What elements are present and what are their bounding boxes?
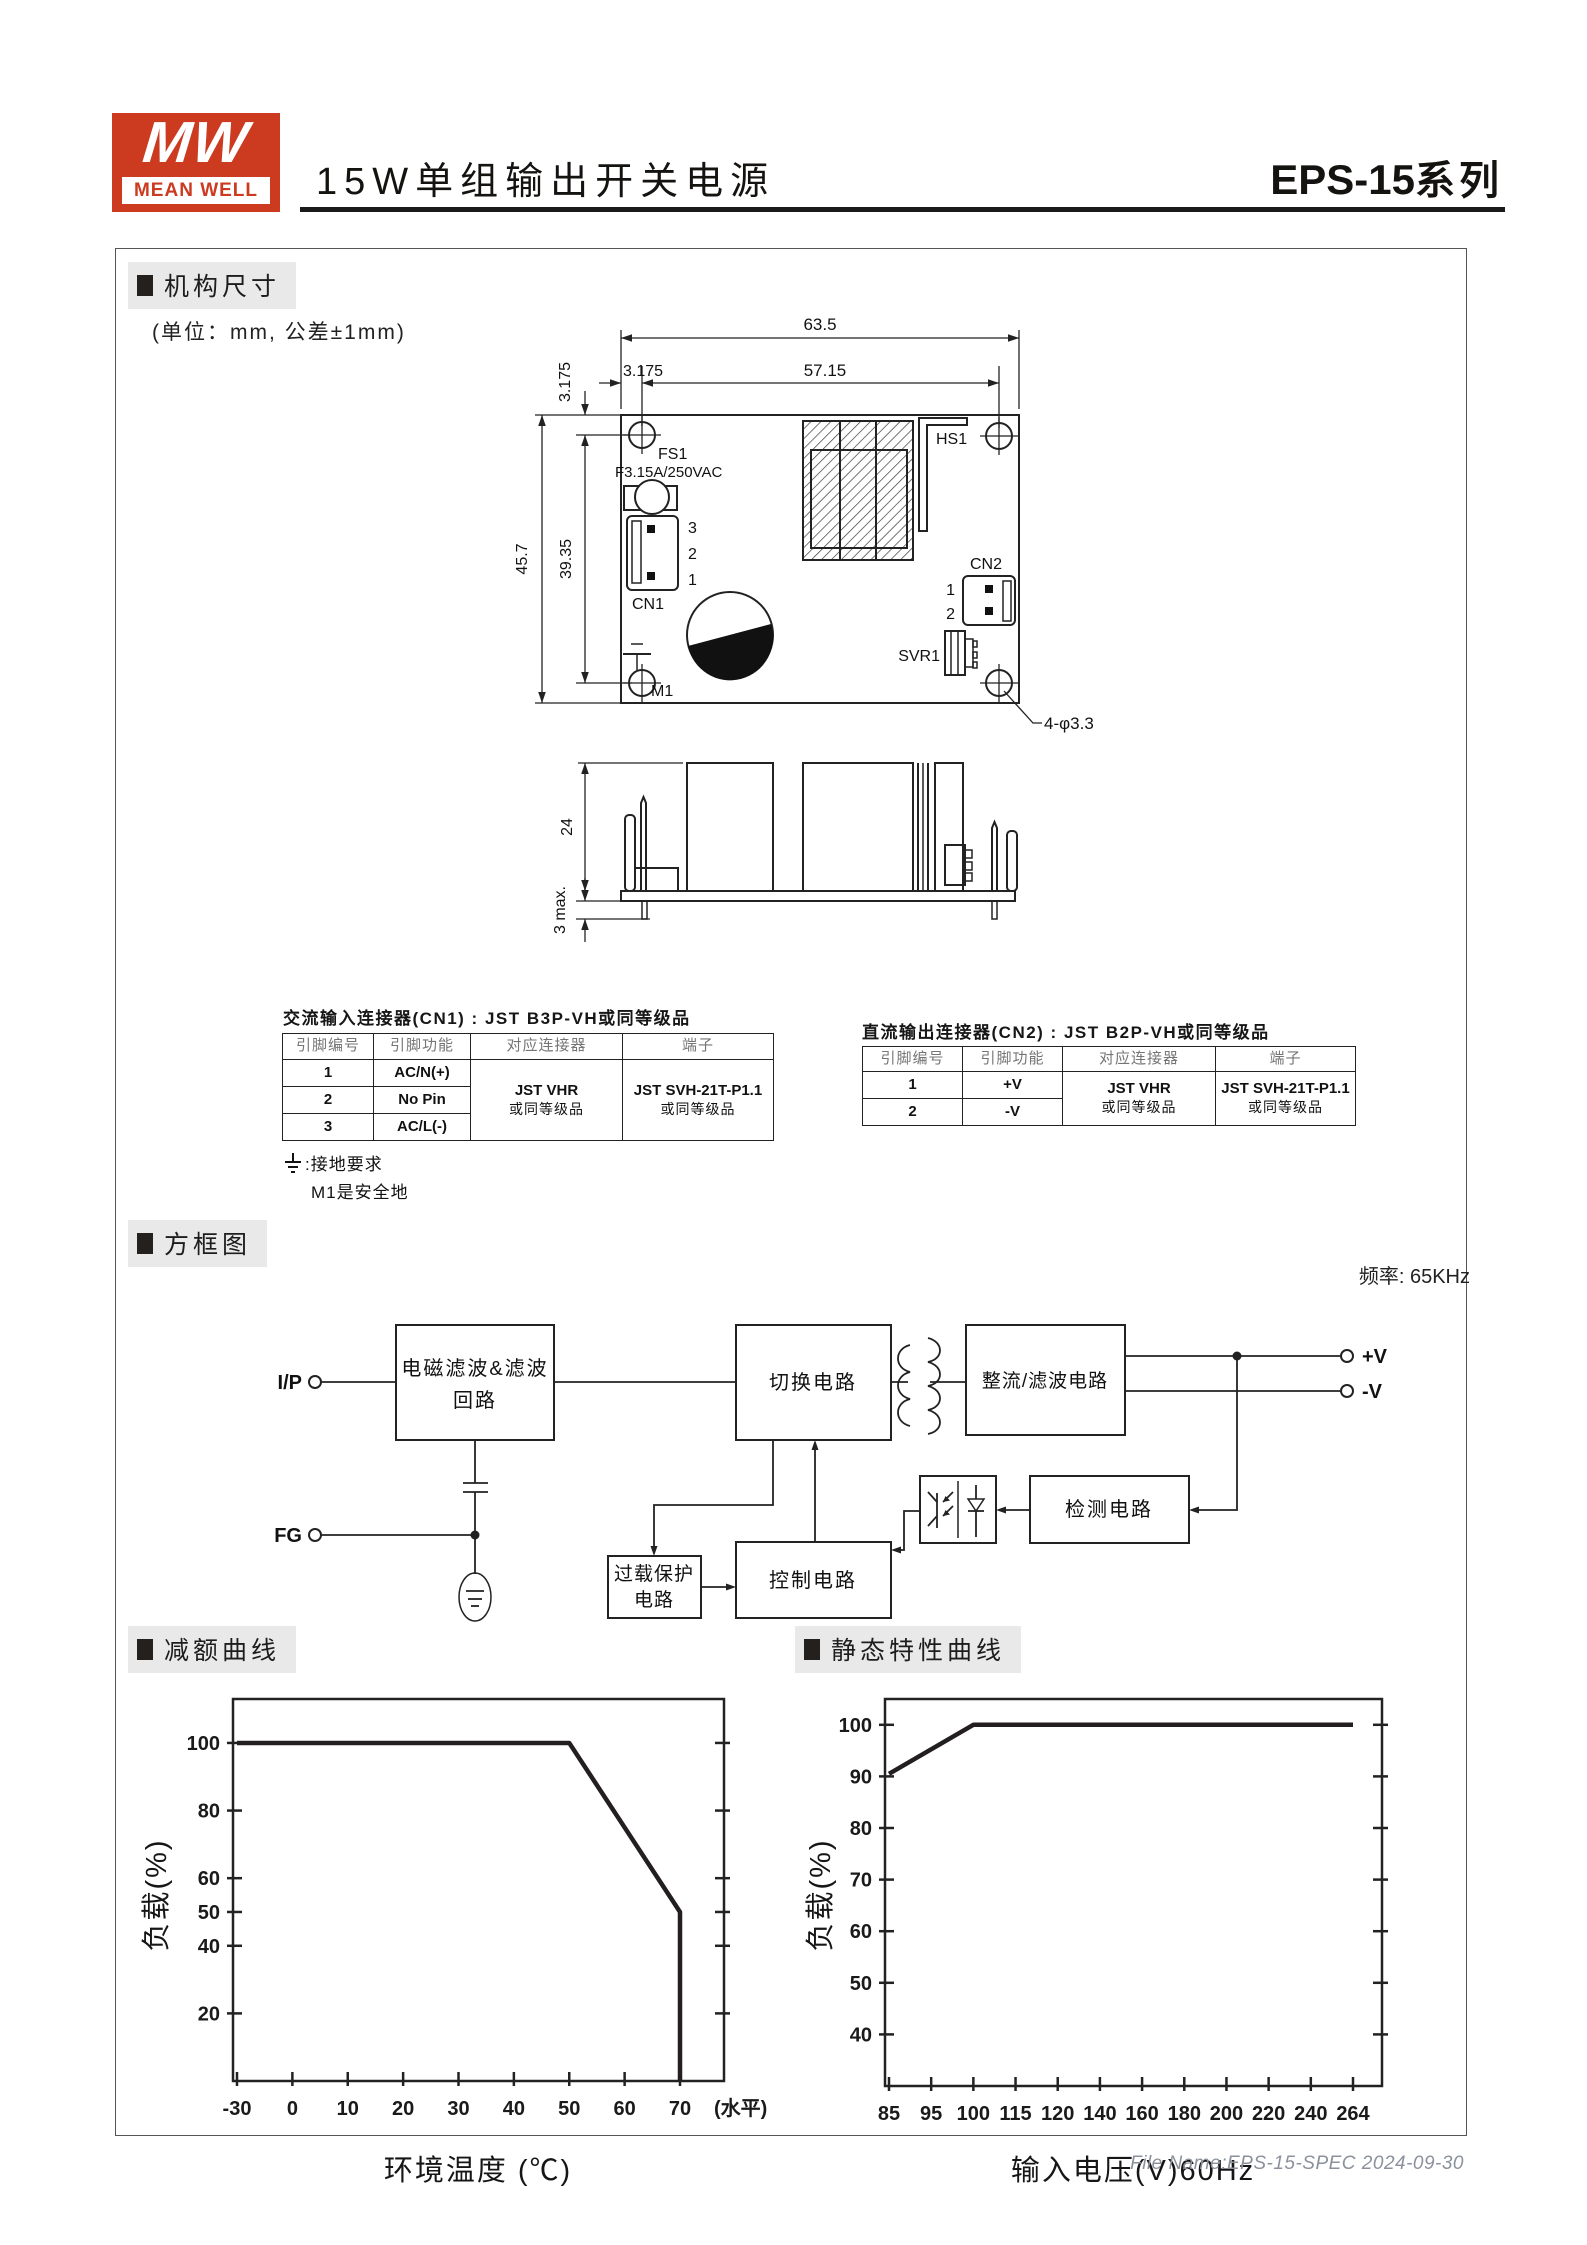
svg-text:100: 100: [957, 2103, 990, 2125]
terminal-fg: [309, 1529, 321, 1541]
logo-brand-text: MEAN WELL: [134, 180, 258, 202]
cn1-r3-pin: 3: [283, 1114, 374, 1141]
svg-text:160: 160: [1125, 2103, 1158, 2125]
cn2-h-func: 引脚功能: [963, 1047, 1063, 1072]
cn1-r3-func: AC/L(-): [374, 1114, 471, 1141]
section-square-icon: [137, 275, 153, 296]
svg-text:200: 200: [1210, 2103, 1243, 2125]
cn2-h-mating: 对应连接器: [1063, 1047, 1216, 1072]
datasheet-page: MW MEAN WELL 15W单组输出开关电源 EPS-15系列 机构尺寸 (…: [0, 0, 1587, 2245]
side-transformer: [803, 763, 913, 891]
cn1-h-mating: 对应连接器: [471, 1034, 623, 1060]
svg-text:80: 80: [850, 1818, 872, 1840]
svg-text:10: 10: [337, 2098, 359, 2120]
svg-text:20: 20: [392, 2098, 414, 2120]
svg-text:60: 60: [614, 2098, 636, 2120]
label-hs1: HS1: [936, 431, 967, 448]
side-pcb: [621, 891, 1015, 901]
cn2-terminal-cell: JST SVH-21T-P1.1或同等级品: [1216, 1072, 1356, 1126]
series-suffix: 系列: [1415, 159, 1503, 203]
cn2-h-terminal: 端子: [1216, 1047, 1356, 1072]
dim-board-width: 63.5: [803, 315, 836, 334]
svg-text:40: 40: [503, 2098, 525, 2120]
derating-chart: 负载(%) 环境温度 (℃) 2040506080100-30010203040…: [130, 1690, 790, 2210]
transformer: [803, 421, 913, 560]
svg-text:220: 220: [1252, 2103, 1285, 2125]
label-vplus: +V: [1362, 1346, 1388, 1368]
label-fs1: FS1: [658, 446, 687, 463]
derating-ylabel: 负载(%): [140, 1838, 173, 1951]
svg-text:140: 140: [1083, 2103, 1116, 2125]
label-fuse-rating: F3.15A/250VAC: [615, 464, 722, 481]
dim-hole-span-v: 39.35: [558, 539, 575, 579]
svg-text:70: 70: [669, 2098, 691, 2120]
svg-text:264: 264: [1336, 2103, 1370, 2125]
logo-mw-icon: MW: [108, 109, 283, 176]
svg-text:-30: -30: [223, 2098, 252, 2120]
svg-text:30: 30: [447, 2098, 469, 2120]
cn1-h-pin: 引脚编号: [283, 1034, 374, 1060]
svg-text:(水平): (水平): [714, 2097, 767, 2120]
svg-text:回路: 回路: [453, 1389, 497, 1412]
cn2-r1-pin: 1: [863, 1072, 963, 1099]
static-chart: 负载(%) 输入电压(V)60Hz 4050607080901008595100…: [790, 1690, 1480, 2210]
cn1-table-title: 交流输入连接器(CN1) : JST B3P-VH或同等级品: [283, 1004, 691, 1029]
svg-text:90: 90: [850, 1766, 872, 1788]
cn2-mating-cell: JST VHR或同等级品: [1063, 1072, 1216, 1126]
label-fg: FG: [274, 1525, 302, 1547]
section-square-icon: [804, 1639, 820, 1660]
ground-note: :接地要求: [283, 1150, 383, 1176]
svg-text:切换电路: 切换电路: [769, 1371, 857, 1394]
svr1-pot: [945, 631, 965, 675]
svg-text:115: 115: [999, 2103, 1031, 2125]
fuse-cap: [635, 480, 669, 514]
svg-text:50: 50: [850, 1973, 872, 1995]
side-capacitor: [687, 763, 773, 891]
earth-ground-icon: [283, 1150, 303, 1176]
section-derating-label: 减额曲线: [164, 1631, 280, 1667]
svg-text:整流/滤波电路: 整流/滤波电路: [982, 1370, 1108, 1392]
cn1-mating-cell: JST VHR或同等级品: [471, 1060, 623, 1141]
label-svr1: SVR1: [898, 648, 940, 665]
svg-text:100: 100: [839, 1715, 872, 1737]
svg-text:95: 95: [920, 2103, 942, 2125]
svg-text:180: 180: [1168, 2103, 1201, 2125]
svg-text:240: 240: [1294, 2103, 1327, 2125]
svg-text:过载保护: 过载保护: [614, 1563, 694, 1585]
optocoupler-icon: [920, 1476, 996, 1543]
cn2-connector: [963, 576, 1015, 625]
section-derating-curve: 减额曲线: [128, 1626, 296, 1673]
svg-text:100: 100: [187, 1733, 220, 1755]
cn2-table: 引脚编号 引脚功能 对应连接器 端子 1 +V JST VHR或同等级品 JST…: [862, 1046, 1356, 1126]
derating-xlabel: 环境温度 (℃): [384, 2154, 572, 2187]
cn2-table-title: 直流输出连接器(CN2) : JST B2P-VH或同等级品: [862, 1018, 1270, 1043]
svg-text:70: 70: [850, 1870, 872, 1892]
terminal-input: [309, 1376, 321, 1388]
cn1-pin3: 3: [688, 520, 697, 537]
terminal-vplus: [1341, 1350, 1353, 1362]
ground-note-line2: M1是安全地: [311, 1178, 409, 1203]
svg-text:电路: 电路: [634, 1589, 674, 1611]
label-ip: I/P: [278, 1372, 302, 1394]
meanwell-logo: MW MEAN WELL: [112, 113, 280, 212]
mechanical-drawing: 63.5 57.15 3.175 3.175 39.35 45.7 FS1 F3…: [370, 278, 1130, 978]
block-diagram: I/P FG +V -V 电磁滤波&滤波 回路 切换电路 整流/滤波电路 过载保…: [140, 1250, 1480, 1630]
dim-board-height: 45.7: [514, 543, 531, 574]
cn2-h-pin: 引脚编号: [863, 1047, 963, 1072]
svg-text:40: 40: [850, 2024, 872, 2046]
label-m1: M1: [651, 683, 673, 700]
cn1-pin1: 1: [688, 572, 697, 589]
svg-text:85: 85: [878, 2103, 900, 2125]
svg-text:120: 120: [1041, 2103, 1074, 2125]
svg-text:60: 60: [198, 1868, 220, 1890]
footer-filename: File Name:EPS-15-SPEC 2024-09-30: [1130, 2153, 1464, 2175]
dim-hole-span-h: 57.15: [804, 361, 847, 380]
transformer-icon: [898, 1338, 940, 1434]
cn1-terminal-cell: JST SVH-21T-P1.1或同等级品: [623, 1060, 774, 1141]
svg-text:0: 0: [287, 2098, 298, 2120]
header-rule: [300, 207, 1505, 212]
section-static-curve: 静态特性曲线: [795, 1626, 1021, 1673]
svg-text:检测电路: 检测电路: [1065, 1498, 1153, 1521]
logo-brand-strip: MEAN WELL: [122, 177, 270, 204]
section-mechanical-label: 机构尺寸: [164, 267, 280, 303]
cn2-r1-func: +V: [963, 1072, 1063, 1099]
svg-text:控制电路: 控制电路: [769, 1569, 857, 1592]
ground-note-line1: :接地要求: [305, 1150, 383, 1175]
cn2-r2-pin: 2: [863, 1099, 963, 1126]
cn2-pin1: 1: [946, 582, 955, 599]
earth-ground-icon: [459, 1573, 491, 1621]
section-mechanical: 机构尺寸: [128, 262, 296, 309]
section-square-icon: [137, 1639, 153, 1660]
dim-pin-protrusion: 3 max.: [552, 886, 569, 934]
svg-text:20: 20: [198, 2003, 220, 2025]
svg-text:50: 50: [558, 2098, 580, 2120]
cn1-r2-pin: 2: [283, 1087, 374, 1114]
label-cn2: CN2: [970, 556, 1002, 573]
section-static-label: 静态特性曲线: [831, 1631, 1005, 1667]
cn1-r1-pin: 1: [283, 1060, 374, 1087]
unit-note: (单位：mm, 公差±1mm): [152, 316, 406, 346]
svg-text:80: 80: [198, 1801, 220, 1823]
cn1-r2-func: No Pin: [374, 1087, 471, 1114]
cn2-r2-func: -V: [963, 1099, 1063, 1126]
cn2-pin2: 2: [946, 606, 955, 623]
svg-text:40: 40: [198, 1936, 220, 1958]
dim-holes-note: 4-φ3.3: [1044, 714, 1094, 733]
cn1-h-terminal: 端子: [623, 1034, 774, 1060]
dim-offset-h: 3.175: [623, 363, 663, 380]
terminal-vminus: [1341, 1385, 1353, 1397]
label-cn1: CN1: [632, 596, 664, 613]
side-heatsink: [935, 763, 963, 891]
cn1-pin2: 2: [688, 546, 697, 563]
svg-text:50: 50: [198, 1902, 220, 1924]
dim-offset-v: 3.175: [557, 362, 574, 402]
cn1-r1-func: AC/N(+): [374, 1060, 471, 1087]
series-title: EPS-15系列: [1270, 148, 1503, 206]
dim-side-height: 24: [559, 818, 576, 836]
static-ylabel: 负载(%): [804, 1838, 837, 1951]
block-emi-filter: [396, 1325, 554, 1440]
cn1-h-func: 引脚功能: [374, 1034, 471, 1060]
svg-text:60: 60: [850, 1921, 872, 1943]
cn1-table: 引脚编号 引脚功能 对应连接器 端子 1 AC/N(+) JST VHR或同等级…: [282, 1033, 774, 1141]
label-vminus: -V: [1362, 1381, 1383, 1403]
svg-text:电磁滤波&滤波: 电磁滤波&滤波: [401, 1357, 548, 1380]
page-title: 15W单组输出开关电源: [316, 150, 775, 205]
series-name: EPS-15: [1270, 156, 1415, 203]
